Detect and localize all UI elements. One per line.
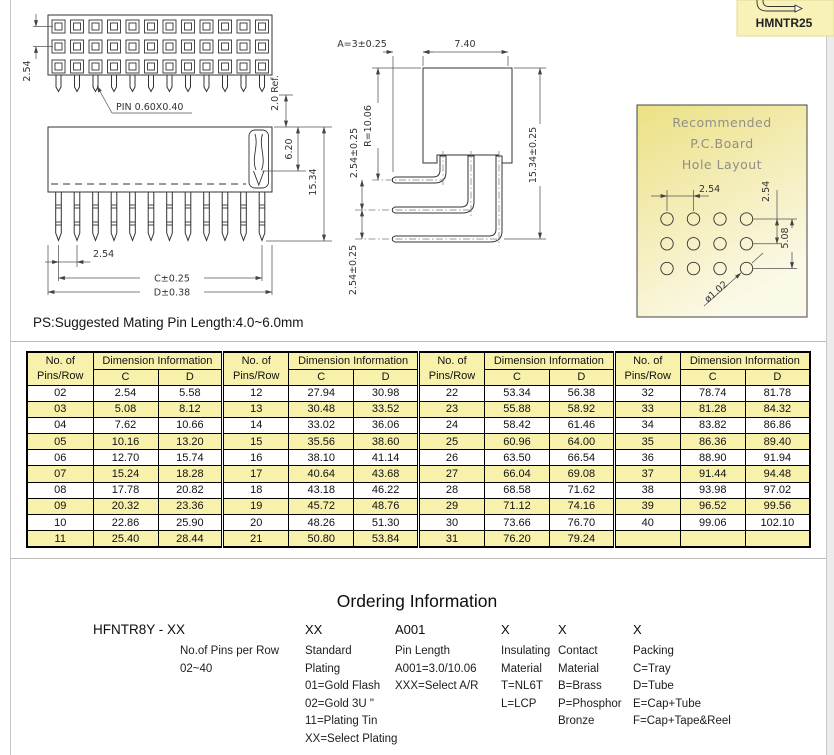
table-cell: 07 bbox=[27, 466, 93, 482]
table-cell: 36 bbox=[614, 450, 680, 466]
table-cell: 33.52 bbox=[354, 401, 419, 417]
dim-height: 15.34 bbox=[308, 168, 319, 195]
ordering-line: Pin Length bbox=[395, 643, 478, 661]
table-cell: 30.48 bbox=[289, 401, 354, 417]
table-cell: 29 bbox=[419, 498, 485, 514]
pin bbox=[56, 75, 61, 92]
pin bbox=[130, 192, 136, 241]
table-row: 047.6210.661433.0236.062458.4261.463483.… bbox=[27, 417, 810, 433]
dim-depth: 6.20 bbox=[284, 138, 295, 159]
table-cell: 10.16 bbox=[93, 434, 158, 450]
ordering-line: Material bbox=[501, 661, 550, 679]
table-cell: 5.58 bbox=[158, 385, 223, 401]
table-cell: 38 bbox=[614, 482, 680, 498]
pin bbox=[222, 192, 228, 241]
table-cell: 99.56 bbox=[745, 498, 810, 514]
table-cell: 56.38 bbox=[550, 385, 615, 401]
ordering-column: Pin LengthA001=3.0/10.06XXX=Select A/R bbox=[395, 643, 478, 696]
table-row: 0510.1613.201535.5638.602560.9664.003586… bbox=[27, 434, 810, 450]
table-cell: 55.88 bbox=[485, 401, 550, 417]
table-cell: 04 bbox=[27, 417, 93, 433]
table-cell: 79.24 bbox=[550, 531, 615, 547]
table-cell: 60.96 bbox=[485, 434, 550, 450]
pin bbox=[93, 75, 98, 92]
table-cell: 05 bbox=[27, 434, 93, 450]
ordering-line: 02~40 bbox=[180, 661, 279, 679]
pin bbox=[149, 75, 154, 92]
table-cell: 15.74 bbox=[158, 450, 223, 466]
pin bbox=[186, 75, 191, 92]
table-cell bbox=[745, 531, 810, 547]
table-cell: 94.48 bbox=[745, 466, 810, 482]
drawing-front-view: 6.20 15.34 2.54 C±0.25 D±0.38 bbox=[45, 127, 332, 299]
dim-total-height: 15.34±0.25 bbox=[528, 127, 539, 183]
col-header-dim: Dimension Information bbox=[289, 352, 419, 369]
table-cell: 41.14 bbox=[354, 450, 419, 466]
table-row: 022.545.581227.9430.982253.3456.383278.7… bbox=[27, 385, 810, 401]
dimension-table: No. ofPins/RowDimension InformationNo. o… bbox=[26, 351, 811, 548]
table-cell: 24 bbox=[419, 417, 485, 433]
pin bbox=[241, 192, 247, 241]
ordering-line: 02=Gold 3U " bbox=[305, 696, 397, 714]
col-header-pins: No. ofPins/Row bbox=[27, 352, 93, 385]
table-cell: 08 bbox=[27, 482, 93, 498]
ordering-line: C=Tray bbox=[633, 661, 731, 679]
table-cell: 91.44 bbox=[680, 466, 745, 482]
dim-d: D±0.38 bbox=[154, 288, 190, 299]
table-cell: 58.42 bbox=[485, 417, 550, 433]
ordering-column: PackingC=TrayD=TubeE=Cap+TubeF=Cap+Tape&… bbox=[633, 643, 731, 731]
dim-pitch-bottom: 2.54±0.25 bbox=[348, 245, 359, 295]
table-row: 035.088.121330.4833.522355.8858.923381.2… bbox=[27, 401, 810, 417]
table-cell: 40 bbox=[614, 515, 680, 531]
table-cell: 39 bbox=[614, 498, 680, 514]
ordering-line: No.of Pins per Row bbox=[180, 643, 279, 661]
dim-hole-span-y: 5.08 bbox=[780, 227, 791, 248]
table-cell: 50.80 bbox=[289, 531, 354, 547]
table-cell: 76.70 bbox=[550, 515, 615, 531]
table-cell: 64.00 bbox=[550, 434, 615, 450]
col-header-pins: No. ofPins/Row bbox=[614, 352, 680, 385]
table-cell: 66.04 bbox=[485, 466, 550, 482]
ordering-column: No.of Pins per Row02~40 bbox=[180, 643, 279, 678]
table-cell: 21 bbox=[223, 531, 289, 547]
ordering-line: Plating bbox=[305, 661, 397, 679]
dim-c: C±0.25 bbox=[154, 274, 190, 285]
table-cell: 20.32 bbox=[93, 498, 158, 514]
pin bbox=[260, 75, 265, 92]
pin bbox=[130, 75, 135, 92]
ordering-code: X bbox=[633, 622, 642, 637]
table-cell: 53.34 bbox=[485, 385, 550, 401]
model-badge: HMNTR25 bbox=[737, 0, 834, 36]
table-cell: 30 bbox=[419, 515, 485, 531]
table-cell: 35.56 bbox=[289, 434, 354, 450]
table-cell: 89.40 bbox=[745, 434, 810, 450]
pin bbox=[167, 192, 173, 241]
table-cell: 16 bbox=[223, 450, 289, 466]
col-header-dim: Dimension Information bbox=[680, 352, 810, 369]
ordering-code: XX bbox=[305, 622, 322, 637]
col-header-d: D bbox=[158, 369, 223, 385]
pin bbox=[204, 75, 209, 92]
table-cell: 35 bbox=[614, 434, 680, 450]
ordering-line: XXX=Select A/R bbox=[395, 678, 478, 696]
table-cell: 76.20 bbox=[485, 531, 550, 547]
table-cell: 31 bbox=[419, 531, 485, 547]
ordering-line: Bronze bbox=[558, 713, 622, 731]
table-cell: 36.06 bbox=[354, 417, 419, 433]
table-cell: 43.68 bbox=[354, 466, 419, 482]
table-cell: 97.02 bbox=[745, 482, 810, 498]
table-cell: 37 bbox=[614, 466, 680, 482]
dim-tail-ref: 2.0 Ref. bbox=[270, 75, 281, 111]
dim-hole-pitch-y: 2.54 bbox=[761, 181, 772, 202]
ordering-code: X bbox=[501, 622, 510, 637]
table-cell: 15 bbox=[223, 434, 289, 450]
ordering-column: ContactMaterialB=BrassP=PhosphorBronze bbox=[558, 643, 622, 731]
col-header-d: D bbox=[745, 369, 810, 385]
pin bbox=[204, 192, 210, 241]
table-cell: 7.62 bbox=[93, 417, 158, 433]
table-cell: 11 bbox=[27, 531, 93, 547]
front-view-pins bbox=[56, 192, 265, 241]
table-cell: 48.26 bbox=[289, 515, 354, 531]
table-cell: 27.94 bbox=[289, 385, 354, 401]
pin-size-label: PIN 0.60X0.40 bbox=[116, 102, 183, 113]
table-cell: 34 bbox=[614, 417, 680, 433]
table-cell: 45.72 bbox=[289, 498, 354, 514]
ordering-line: E=Cap+Tube bbox=[633, 696, 731, 714]
table-cell: 5.08 bbox=[93, 401, 158, 417]
table-cell: 61.46 bbox=[550, 417, 615, 433]
table-cell: 40.64 bbox=[289, 466, 354, 482]
col-header-pins: No. ofPins/Row bbox=[419, 352, 485, 385]
ordering-line: B=Brass bbox=[558, 678, 622, 696]
table-cell: 30.98 bbox=[354, 385, 419, 401]
drawing-side-view: A=3±0.25 7.40 R=10.06 2.54±0.25 2.54±0.2… bbox=[337, 39, 546, 295]
ordering-line: Contact bbox=[558, 643, 622, 661]
table-row: 0715.2418.281740.6443.682766.0469.083791… bbox=[27, 466, 810, 482]
table-cell: 93.98 bbox=[680, 482, 745, 498]
mating-pin-note: PS:Suggested Mating Pin Length:4.0~6.0mm bbox=[33, 315, 304, 330]
table-cell: 23.36 bbox=[158, 498, 223, 514]
pin bbox=[185, 192, 191, 241]
table-cell: 63.50 bbox=[485, 450, 550, 466]
col-header-d: D bbox=[550, 369, 615, 385]
table-cell: 02 bbox=[27, 385, 93, 401]
dim-width: 7.40 bbox=[454, 39, 475, 50]
table-cell: 18.28 bbox=[158, 466, 223, 482]
table-cell: 27 bbox=[419, 466, 485, 482]
table-cell: 09 bbox=[27, 498, 93, 514]
table-cell: 19 bbox=[223, 498, 289, 514]
dim-pin-pitch: 2.54 bbox=[93, 249, 114, 260]
table-cell: 68.58 bbox=[485, 482, 550, 498]
table-cell: 2.54 bbox=[93, 385, 158, 401]
ordering-line: Insulating bbox=[501, 643, 550, 661]
ordering-line: Packing bbox=[633, 643, 731, 661]
ordering-code: A001 bbox=[395, 622, 425, 637]
table-cell: 28 bbox=[419, 482, 485, 498]
table-cell: 69.08 bbox=[550, 466, 615, 482]
pin bbox=[241, 75, 246, 92]
table-cell: 25 bbox=[419, 434, 485, 450]
pin bbox=[75, 75, 80, 92]
table-cell: 46.22 bbox=[354, 482, 419, 498]
table-cell: 13 bbox=[223, 401, 289, 417]
model-number: HMNTR25 bbox=[756, 16, 813, 30]
table-cell: 10.66 bbox=[158, 417, 223, 433]
top-view-pins bbox=[56, 75, 265, 92]
pin bbox=[93, 192, 99, 241]
table-cell: 102.10 bbox=[745, 515, 810, 531]
table-cell: 22.86 bbox=[93, 515, 158, 531]
table-cell: 17 bbox=[223, 466, 289, 482]
table-cell: 26 bbox=[419, 450, 485, 466]
part-code: HFNTR8Y - XX bbox=[93, 622, 185, 637]
table-row: 0920.3223.361945.7248.762971.1274.163996… bbox=[27, 498, 810, 514]
ordering-line: XX=Select Plating bbox=[305, 731, 397, 749]
drawing-hole-layout: Recommended P.C.Board Hole Layout 2.54 2… bbox=[637, 105, 807, 317]
table-cell: 81.78 bbox=[745, 385, 810, 401]
section-divider-bottom bbox=[10, 558, 826, 559]
table-cell: 71.62 bbox=[550, 482, 615, 498]
ordering-line: T=NL6T bbox=[501, 678, 550, 696]
ordering-column: InsulatingMaterialT=NL6TL=LCP bbox=[501, 643, 550, 713]
col-header-c: C bbox=[289, 369, 354, 385]
table-cell bbox=[680, 531, 745, 547]
pin bbox=[112, 75, 117, 92]
table-cell: 28.44 bbox=[158, 531, 223, 547]
table-cell: 71.12 bbox=[485, 498, 550, 514]
table-cell: 83.82 bbox=[680, 417, 745, 433]
table-cell: 91.94 bbox=[745, 450, 810, 466]
table-cell: 15.24 bbox=[93, 466, 158, 482]
table-cell: 13.20 bbox=[158, 434, 223, 450]
table-cell: 73.66 bbox=[485, 515, 550, 531]
table-cell: 33 bbox=[614, 401, 680, 417]
table-cell: 96.52 bbox=[680, 498, 745, 514]
ordering-line: Standard bbox=[305, 643, 397, 661]
pin bbox=[111, 192, 117, 241]
hole-layout-title-2: P.C.Board bbox=[690, 136, 754, 151]
table-cell: 99.06 bbox=[680, 515, 745, 531]
drawing-top-view: 2.54 PIN 0.60X0.40 2.0 Ref. bbox=[22, 14, 293, 127]
table-row: 0817.7820.821843.1846.222868.5871.623893… bbox=[27, 482, 810, 498]
table-cell: 86.86 bbox=[745, 417, 810, 433]
technical-drawings: 2.54 PIN 0.60X0.40 2.0 Ref. 6.20 15.34 2… bbox=[0, 0, 834, 345]
pin bbox=[148, 192, 154, 241]
col-header-d: D bbox=[354, 369, 419, 385]
table-cell: 20.82 bbox=[158, 482, 223, 498]
table-cell: 20 bbox=[223, 515, 289, 531]
ordering-line: F=Cap+Tape&Reel bbox=[633, 713, 731, 731]
table-cell: 78.74 bbox=[680, 385, 745, 401]
table-cell: 14 bbox=[223, 417, 289, 433]
dim-row-pitch: 2.54 bbox=[22, 60, 33, 81]
pin bbox=[259, 192, 265, 241]
pin bbox=[223, 75, 228, 92]
table-cell: 8.12 bbox=[158, 401, 223, 417]
table-row: 1125.4028.442150.8053.843176.2079.24 bbox=[27, 531, 810, 547]
table-cell: 12.70 bbox=[93, 450, 158, 466]
table-cell: 38.60 bbox=[354, 434, 419, 450]
dim-pitch-top: 2.54±0.25 bbox=[349, 128, 360, 178]
ordering-line: 01=Gold Flash bbox=[305, 678, 397, 696]
table-cell: 48.76 bbox=[354, 498, 419, 514]
hole-layout-title-3: Hole Layout bbox=[682, 157, 762, 172]
table-cell: 74.16 bbox=[550, 498, 615, 514]
ordering-line: A001=3.0/10.06 bbox=[395, 661, 478, 679]
ordering-title: Ordering Information bbox=[0, 591, 834, 612]
table-cell: 12 bbox=[223, 385, 289, 401]
table-row: 1022.8625.902048.2651.303073.6676.704099… bbox=[27, 515, 810, 531]
dim-r: R=10.06 bbox=[363, 105, 374, 147]
table-cell: 33.02 bbox=[289, 417, 354, 433]
table-cell: 23 bbox=[419, 401, 485, 417]
table-cell: 22 bbox=[419, 385, 485, 401]
pin bbox=[56, 192, 62, 241]
pin bbox=[167, 75, 172, 92]
table-cell: 81.28 bbox=[680, 401, 745, 417]
table-cell: 10 bbox=[27, 515, 93, 531]
table-cell: 86.36 bbox=[680, 434, 745, 450]
ordering-line: D=Tube bbox=[633, 678, 731, 696]
col-header-dim: Dimension Information bbox=[485, 352, 615, 369]
table-cell: 88.90 bbox=[680, 450, 745, 466]
table-cell: 25.90 bbox=[158, 515, 223, 531]
col-header-c: C bbox=[93, 369, 158, 385]
ordering-line: P=Phosphor bbox=[558, 696, 622, 714]
col-header-c: C bbox=[485, 369, 550, 385]
table-cell: 32 bbox=[614, 385, 680, 401]
table-cell: 66.54 bbox=[550, 450, 615, 466]
dim-a: A=3±0.25 bbox=[337, 39, 387, 50]
table-row: 0612.7015.741638.1041.142663.5066.543688… bbox=[27, 450, 810, 466]
col-header-dim: Dimension Information bbox=[93, 352, 223, 369]
col-header-pins: No. ofPins/Row bbox=[223, 352, 289, 385]
table-cell: 18 bbox=[223, 482, 289, 498]
table-cell: 53.84 bbox=[354, 531, 419, 547]
table-cell: 84.32 bbox=[745, 401, 810, 417]
col-header-c: C bbox=[680, 369, 745, 385]
ordering-line: 11=Plating Tin bbox=[305, 713, 397, 731]
table-cell bbox=[614, 531, 680, 547]
table-cell: 25.40 bbox=[93, 531, 158, 547]
hole-layout-title-1: Recommended bbox=[672, 115, 771, 130]
table-cell: 38.10 bbox=[289, 450, 354, 466]
table-cell: 17.78 bbox=[93, 482, 158, 498]
ordering-code: X bbox=[558, 622, 567, 637]
ordering-line: L=LCP bbox=[501, 696, 550, 714]
ordering-line: Material bbox=[558, 661, 622, 679]
table-cell: 06 bbox=[27, 450, 93, 466]
table-cell: 03 bbox=[27, 401, 93, 417]
table-cell: 43.18 bbox=[289, 482, 354, 498]
ordering-column: StandardPlating01=Gold Flash02=Gold 3U "… bbox=[305, 643, 397, 749]
table-cell: 58.92 bbox=[550, 401, 615, 417]
dim-hole-pitch-x: 2.54 bbox=[699, 184, 720, 195]
table-cell: 51.30 bbox=[354, 515, 419, 531]
pin bbox=[74, 192, 80, 241]
